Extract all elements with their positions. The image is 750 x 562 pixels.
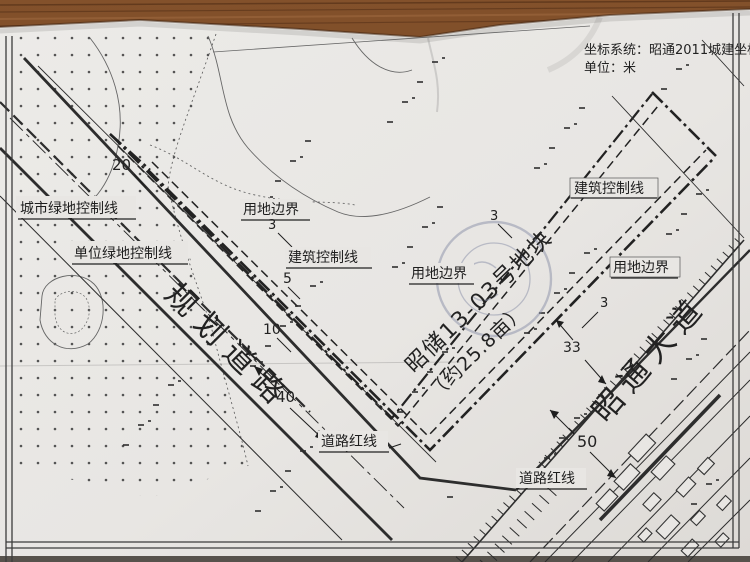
dim-green-belt-20: 20 — [112, 156, 131, 174]
dim-setback-10: 10 — [263, 322, 281, 338]
map-canvas: 20 3 5 10 40 3 3 33 50 城市绿地控制线 单位绿地控制线 用… — [0, 0, 750, 562]
label-building-control-line-1: 建筑控制线 — [288, 250, 358, 266]
dim-setback-3c: 3 — [600, 296, 608, 311]
label-land-use-boundary-3: 用地边界 — [613, 260, 669, 276]
label-road-red-line-2: 道路红线 — [519, 471, 575, 487]
dim-setback-3b: 3 — [490, 209, 498, 224]
label-building-control-line-2: 建筑控制线 — [574, 181, 644, 197]
label-land-use-boundary-1: 用地边界 — [243, 202, 299, 218]
label-city-green-control-line: 城市绿地控制线 — [20, 200, 118, 217]
label-land-use-boundary-2: 用地边界 — [411, 266, 467, 282]
dim-setback-5: 5 — [283, 271, 292, 287]
label-road-red-line-1: 道路红线 — [321, 434, 377, 450]
dim-avenue-50: 50 — [577, 432, 597, 451]
photo-of-planning-map: 20 3 5 10 40 3 3 33 50 城市绿地控制线 单位绿地控制线 用… — [0, 0, 750, 562]
coordinate-note-line1: 坐标系统：昭通2011城建坐标系 — [584, 43, 750, 58]
dim-avenue-33: 33 — [563, 340, 581, 356]
paper-bottom-shadow — [0, 556, 750, 562]
label-unit-green-control-line: 单位绿地控制线 — [74, 246, 172, 262]
coordinate-note-line2: 单位：米 — [584, 61, 636, 76]
